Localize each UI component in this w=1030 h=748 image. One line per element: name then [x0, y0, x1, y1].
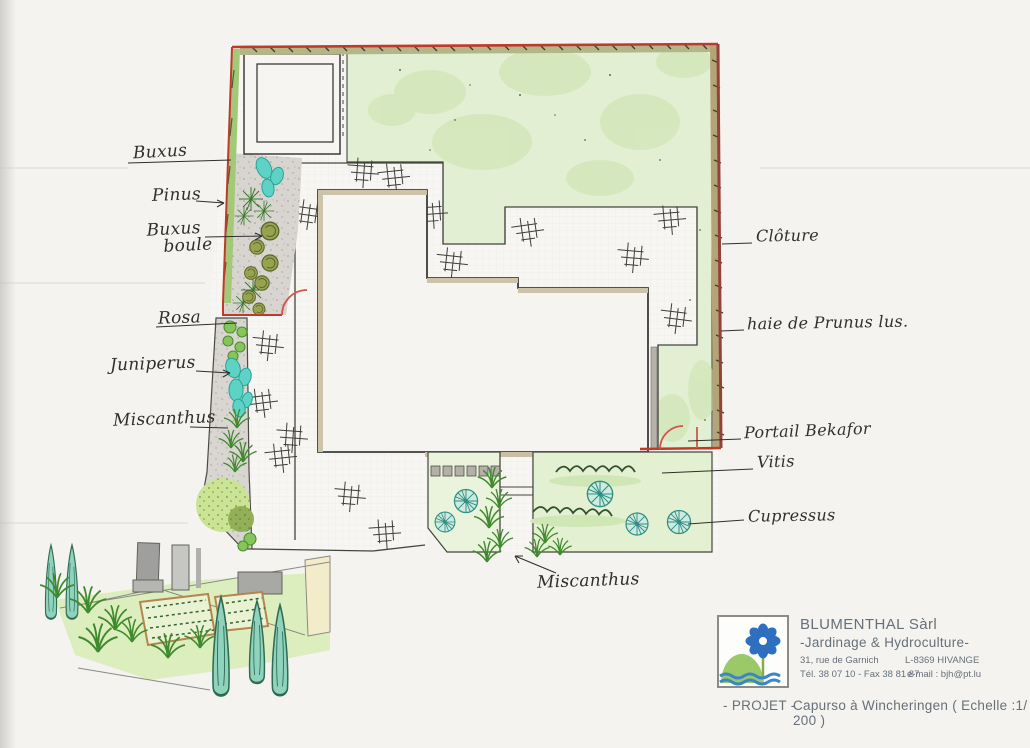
feature-label-cloture: Clôture	[756, 226, 819, 244]
company-street: 31, rue de Garnich	[800, 655, 879, 666]
feature-label-portail: Portail Bekafor	[744, 420, 871, 441]
flower-logo-icon	[719, 617, 787, 686]
company-city: L-8369 HIVANGE	[905, 655, 979, 666]
plant-label-buxus-boule: Buxus boule	[146, 219, 213, 256]
planting-bed-bottom-right	[530, 452, 712, 552]
feature-label-haie-prunus: haie de Prunus lus.	[747, 313, 909, 333]
perspective-sketch	[40, 543, 330, 696]
garden-wall	[651, 347, 657, 449]
buxus-boule-line2: boule	[163, 234, 213, 257]
plant-label-miscanthus-left: Miscanthus	[113, 409, 216, 430]
shed-enclosure	[244, 54, 340, 154]
scanned-garden-plan-page: Buxus Pinus Buxus boule Rosa Juniperus M…	[0, 0, 1030, 748]
plant-label-buxus: Buxus	[133, 143, 188, 163]
company-name: BLUMENTHAL Sàrl	[800, 616, 937, 633]
company-logo	[717, 615, 789, 688]
plant-label-vitis: Vitis	[757, 452, 795, 470]
company-email: e-mail : bjh@pt.lu	[907, 669, 981, 680]
plant-label-cupressus: Cupressus	[748, 506, 836, 525]
company-tagline: -Jardinage & Hydroculture-	[800, 635, 969, 650]
project-prefix: - PROJET -	[723, 698, 796, 713]
plant-label-pinus: Pinus	[152, 186, 202, 205]
company-phone: Tél. 38 07 10 - Fax 38 81 87	[800, 669, 919, 680]
plant-label-rosa: Rosa	[158, 309, 202, 327]
plant-label-juniperus: Juniperus	[110, 355, 196, 375]
plant-label-miscanthus-bottom: Miscanthus	[537, 571, 640, 592]
project-title: Capurso à Wincheringen ( Echelle :1/ 200…	[793, 698, 1030, 728]
